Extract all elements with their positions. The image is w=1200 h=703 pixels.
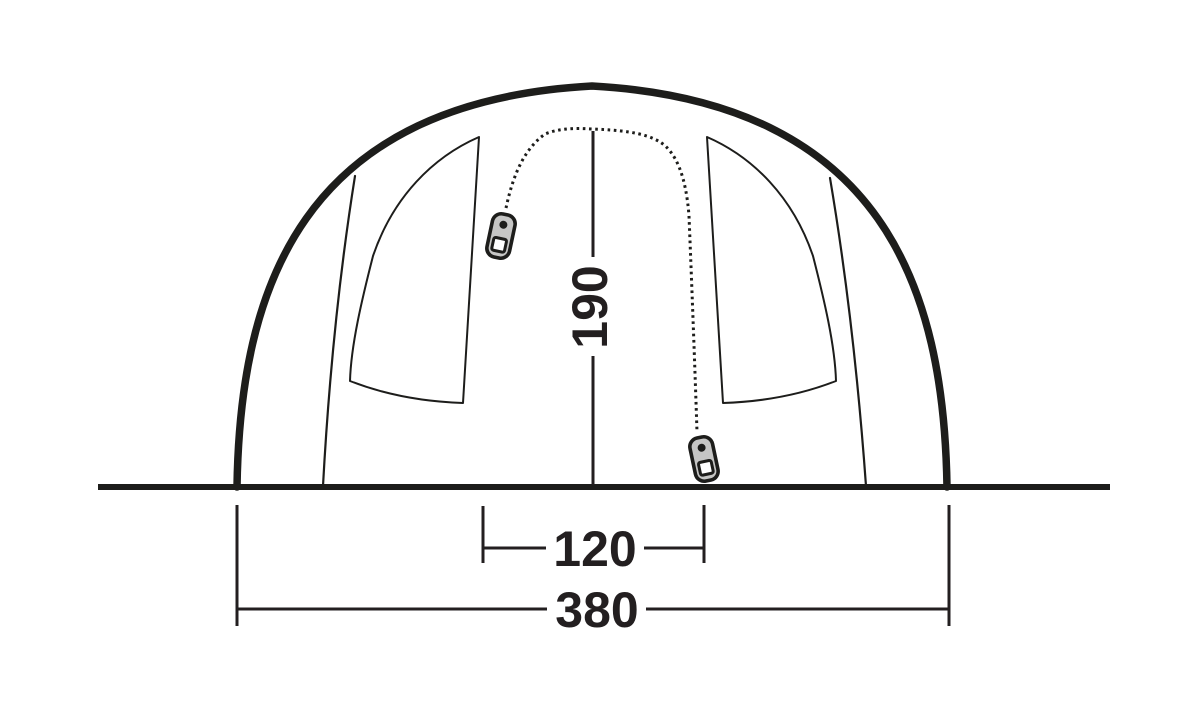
door-width-dimension-label: 120 (553, 521, 636, 577)
left-seam-line (323, 176, 355, 486)
right-window-panel (707, 137, 836, 403)
right-seam-line (830, 178, 866, 486)
left-window-panel (350, 137, 479, 403)
height-dimension-label: 190 (562, 265, 618, 348)
total-width-dimension-label: 380 (555, 582, 638, 638)
zipper-pull-hole (491, 237, 506, 252)
zipper-pull-icon (485, 212, 517, 260)
zipper-pull-icon (688, 435, 720, 483)
tent-diagram-page: 190 120 380 (0, 0, 1200, 703)
tent-front-elevation-diagram: 190 120 380 (0, 0, 1200, 703)
zipper-pull-hole (698, 460, 713, 475)
